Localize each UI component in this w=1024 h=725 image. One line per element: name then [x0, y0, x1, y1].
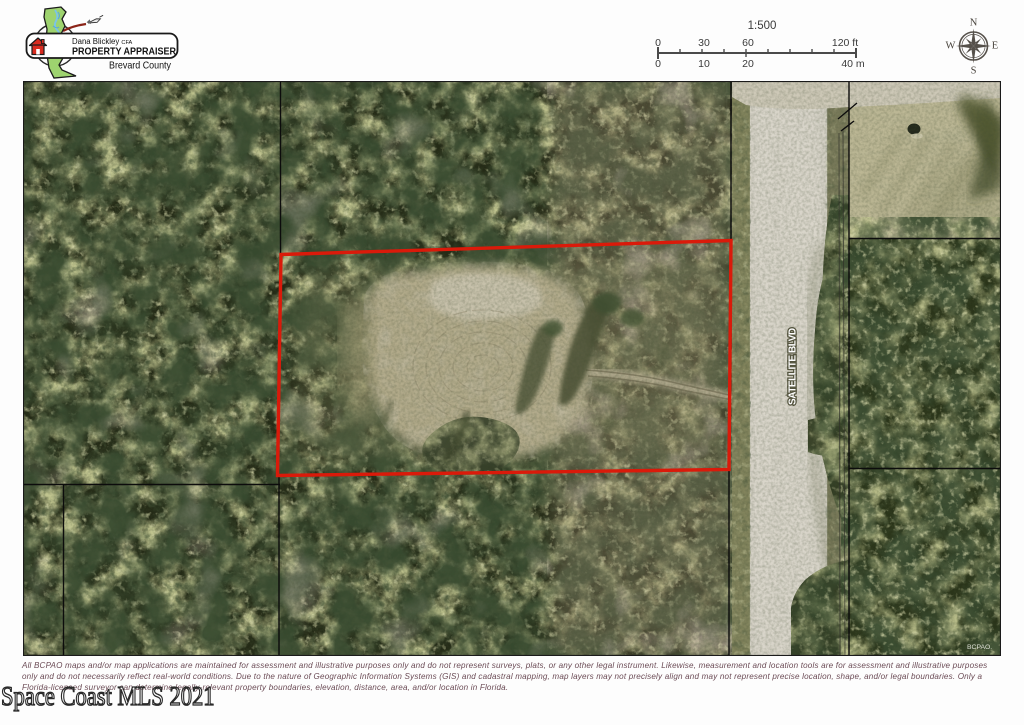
svg-text:40 m: 40 m — [841, 58, 865, 70]
svg-text:Brevard County: Brevard County — [109, 61, 172, 72]
svg-text:N: N — [970, 18, 978, 29]
svg-text:120 ft: 120 ft — [832, 37, 858, 49]
svg-text:30: 30 — [698, 37, 710, 49]
svg-text:E: E — [992, 41, 998, 52]
svg-text:SATELLITE BLVD: SATELLITE BLVD — [788, 328, 799, 405]
svg-text:S: S — [971, 66, 977, 77]
svg-text:0: 0 — [655, 58, 661, 70]
svg-text:10: 10 — [698, 58, 710, 70]
svg-text:W: W — [946, 41, 956, 52]
svg-text:PROPERTY APPRAISER: PROPERTY APPRAISER — [72, 47, 177, 58]
svg-text:20: 20 — [742, 58, 754, 70]
svg-text:60: 60 — [742, 37, 754, 49]
svg-text:1:500: 1:500 — [748, 20, 777, 32]
svg-text:BCPAO.: BCPAO. — [967, 644, 992, 651]
